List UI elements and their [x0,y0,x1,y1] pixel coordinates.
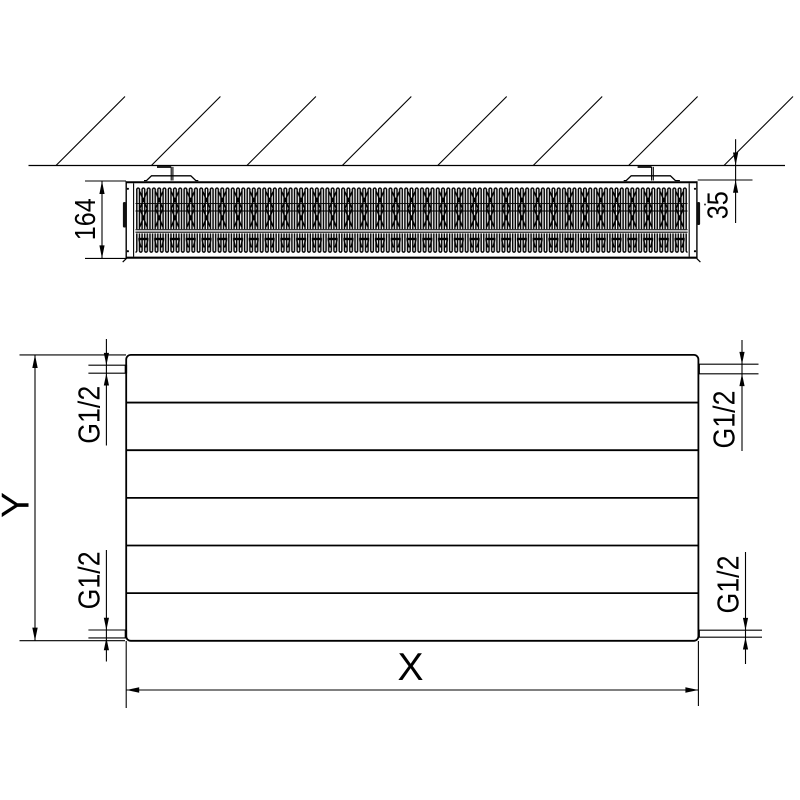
svg-text:164: 164 [70,198,102,240]
svg-text:G1/2: G1/2 [707,391,742,449]
svg-text:G1/2: G1/2 [72,551,107,609]
svg-text:X: X [397,646,423,689]
svg-text:G1/2: G1/2 [711,556,746,614]
svg-text:G1/2: G1/2 [72,386,107,444]
svg-text:35: 35 [703,191,735,219]
svg-text:Y: Y [0,492,38,518]
